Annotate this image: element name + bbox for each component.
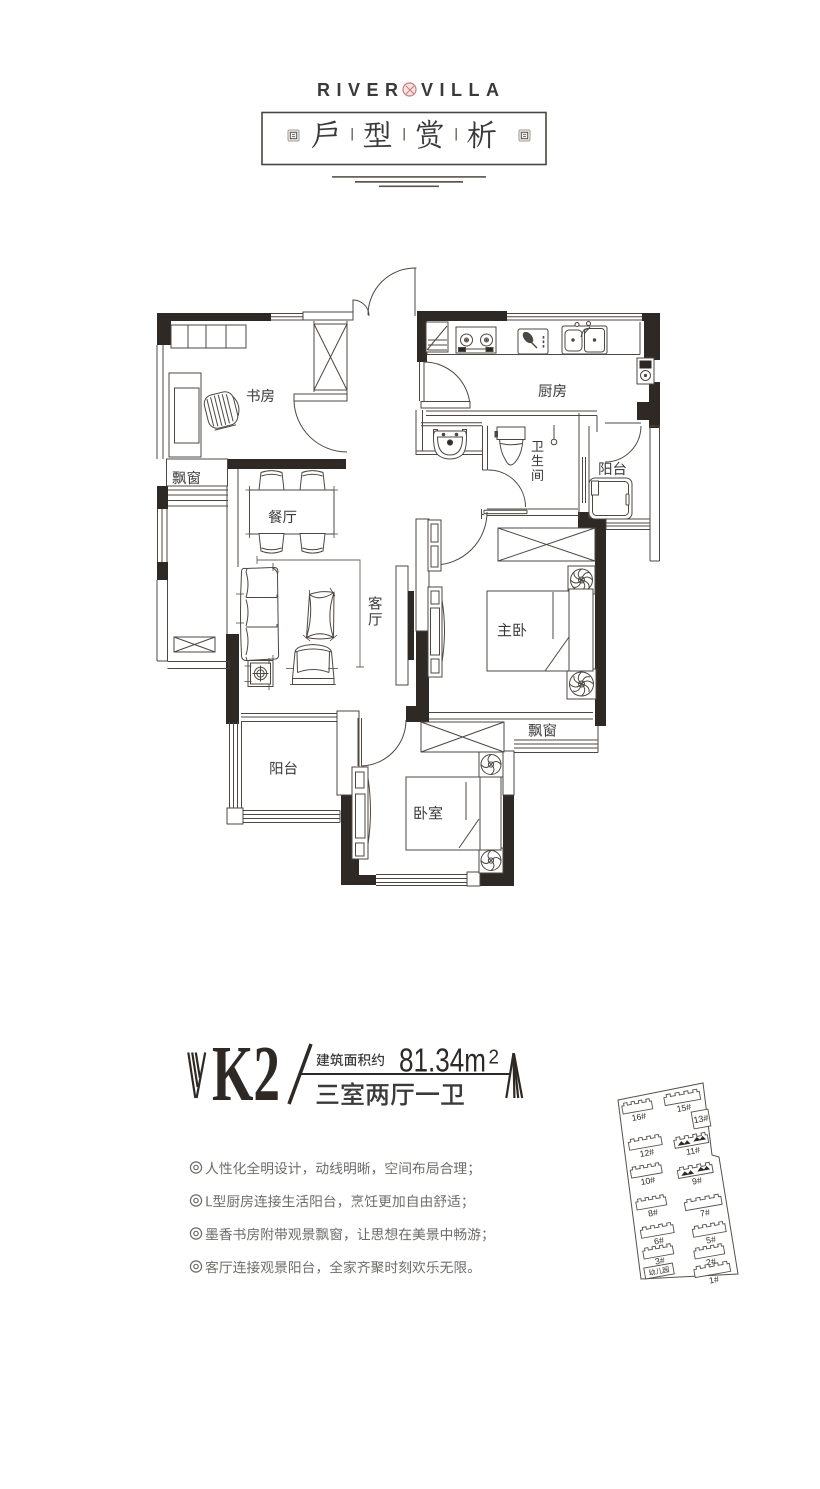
svg-text:7#: 7# (699, 1207, 710, 1219)
svg-text:K2: K2 (212, 1031, 280, 1118)
svg-text:9#: 9# (691, 1175, 702, 1187)
svg-text:1#: 1# (708, 1274, 719, 1286)
svg-text:5#: 5# (705, 1234, 716, 1246)
svg-text:VILLA: VILLA (421, 80, 506, 100)
svg-text:2: 2 (489, 1047, 500, 1069)
svg-text:RIVER: RIVER (317, 80, 405, 100)
svg-text:8#: 8# (647, 1207, 658, 1219)
svg-text:81.34m: 81.34m (399, 1042, 486, 1079)
